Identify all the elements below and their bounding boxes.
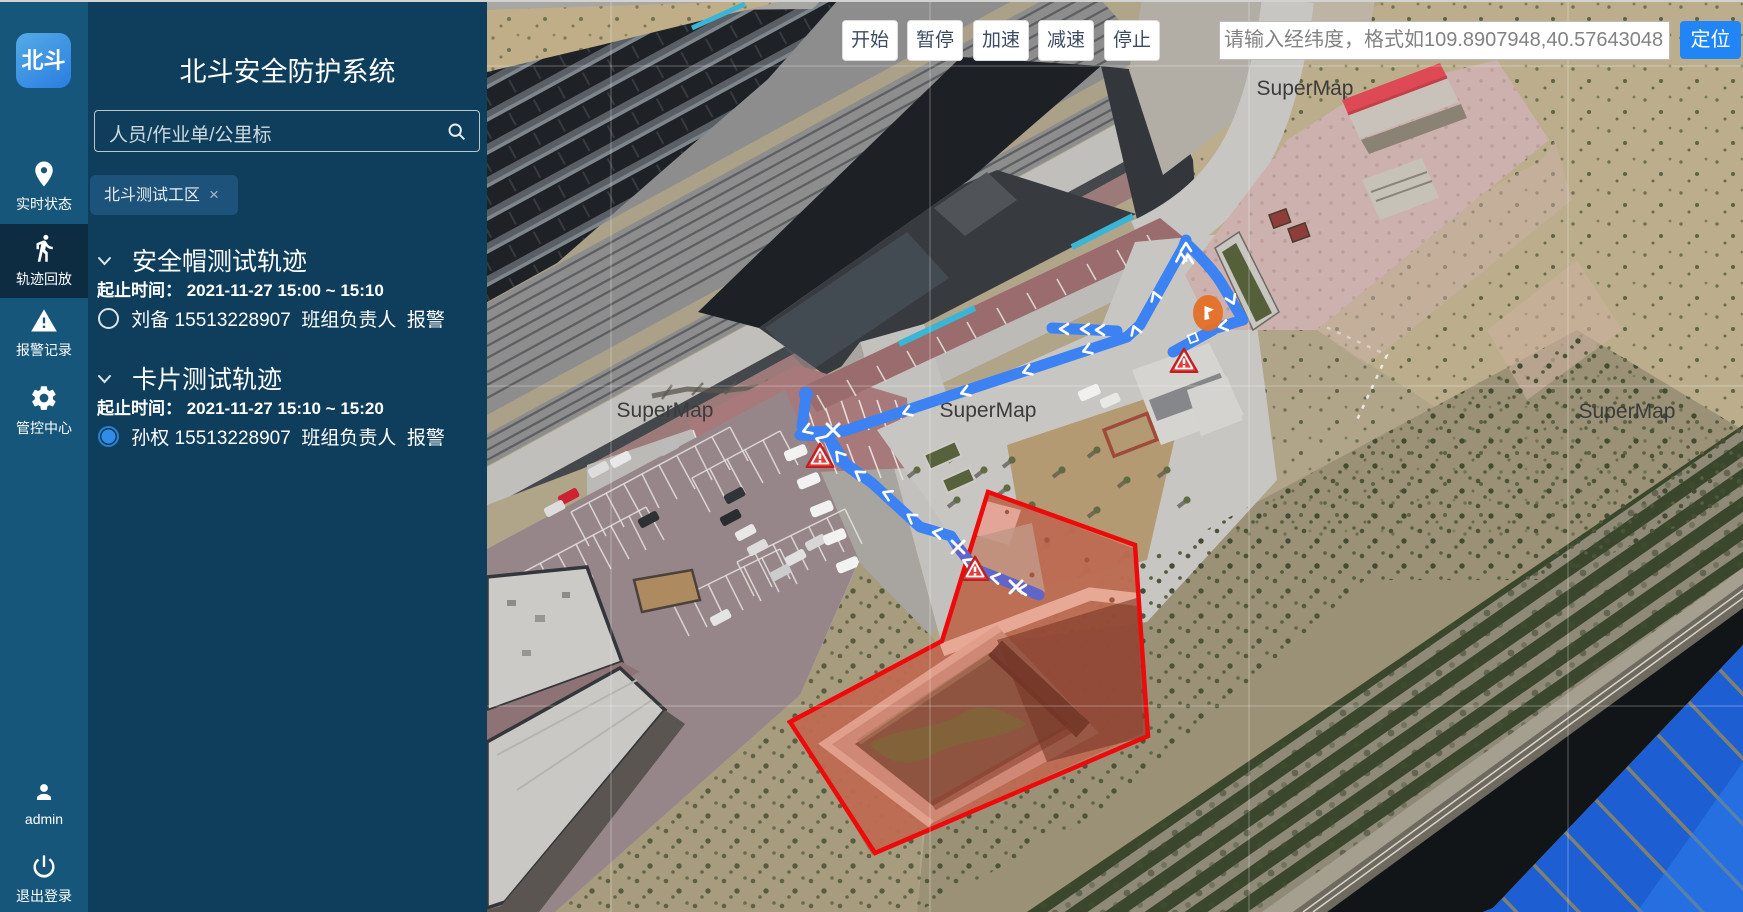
svg-text:SuperMap: SuperMap — [617, 399, 714, 422]
svg-text:SuperMap: SuperMap — [1579, 400, 1676, 423]
svg-text:SuperMap: SuperMap — [940, 399, 1037, 422]
svg-text:SuperMap: SuperMap — [1257, 77, 1354, 100]
